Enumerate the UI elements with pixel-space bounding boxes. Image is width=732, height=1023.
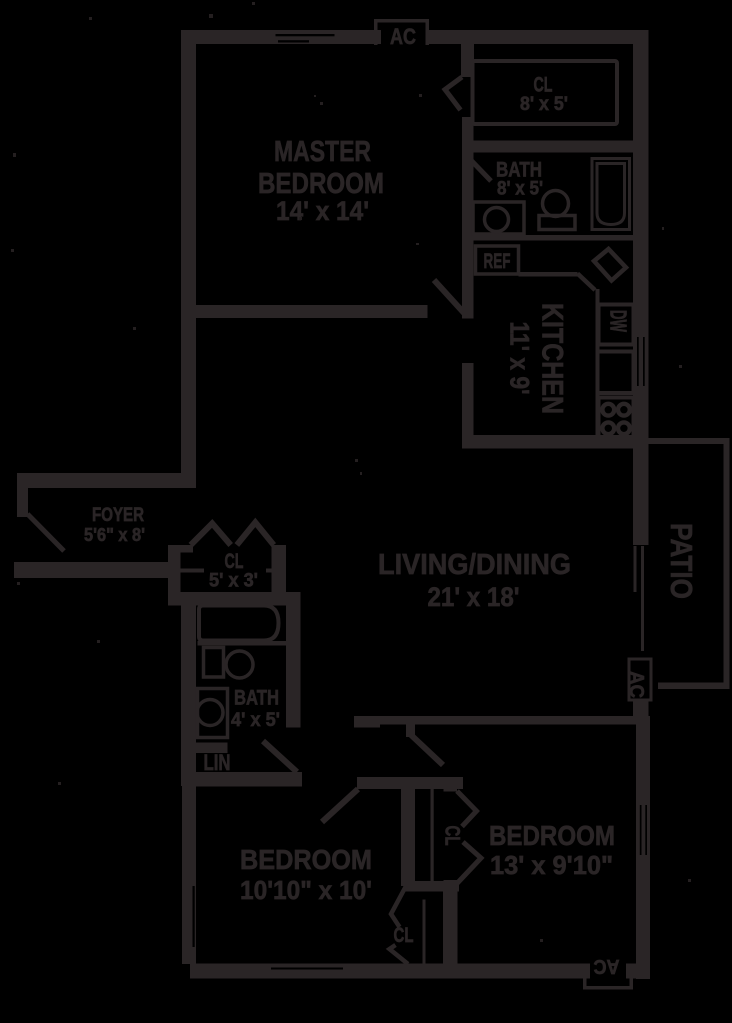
svg-text:5'6" x 8': 5'6" x 8' [84, 525, 145, 545]
svg-text:10'10" x 10': 10'10" x 10' [240, 875, 372, 905]
svg-text:4' x 5': 4' x 5' [231, 710, 280, 731]
svg-text:11' x 9': 11' x 9' [505, 322, 535, 395]
svg-text:BEDROOM: BEDROOM [489, 820, 615, 851]
svg-text:8' x 5': 8' x 5' [497, 179, 543, 200]
svg-text:KITCHEN: KITCHEN [536, 303, 569, 414]
svg-text:REF: REF [484, 250, 511, 273]
svg-text:8' x 5': 8' x 5' [520, 94, 568, 115]
svg-text:13' x 9'10": 13' x 9'10" [490, 850, 613, 880]
svg-text:14' x 14': 14' x 14' [276, 196, 369, 226]
svg-text:PATIO: PATIO [664, 523, 699, 599]
svg-text:AC: AC [390, 24, 416, 49]
svg-text:FOYER: FOYER [92, 505, 144, 526]
svg-text:5' x 3': 5' x 3' [209, 571, 258, 592]
svg-text:AC: AC [594, 955, 620, 977]
svg-text:LIN: LIN [204, 750, 231, 775]
svg-text:BATH: BATH [234, 687, 279, 710]
svg-text:MASTER: MASTER [274, 136, 371, 168]
svg-text:21' x 18': 21' x 18' [428, 582, 520, 612]
svg-text:CL: CL [441, 826, 464, 846]
svg-text:CL: CL [225, 549, 244, 573]
svg-text:CL: CL [394, 924, 414, 947]
svg-text:AC: AC [625, 671, 647, 698]
svg-text:BEDROOM: BEDROOM [240, 844, 372, 875]
svg-text:CL: CL [534, 73, 553, 97]
svg-text:DW: DW [606, 310, 632, 332]
svg-text:LIVING/DINING: LIVING/DINING [378, 549, 571, 581]
